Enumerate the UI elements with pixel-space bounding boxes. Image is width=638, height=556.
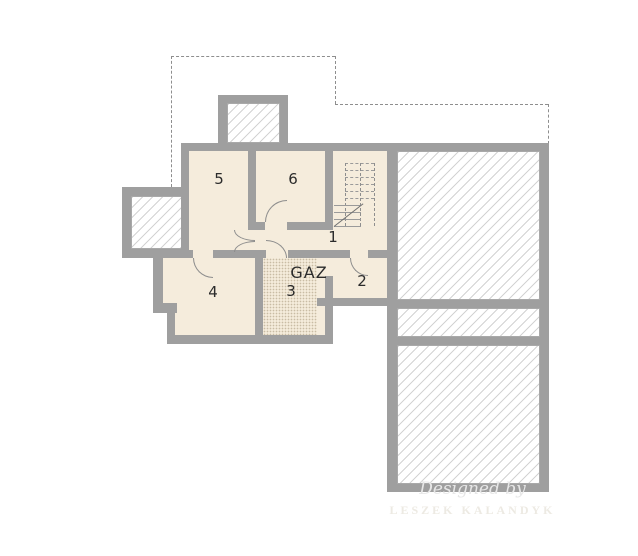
wall-mid-row-a [122,250,193,258]
watermark-author-name: LESZEK KALANDYK [385,503,560,518]
stair-tread-solid [334,205,361,206]
wall-top [181,143,548,151]
wall-room2-bottom [317,298,397,306]
wall-wing-divider-1 [387,300,549,308]
stair-edge-right [374,163,375,226]
stair-tread-solid [334,219,361,220]
right-wing-bottom-hatch-area [397,345,540,484]
wall-room6-stair-divider [325,143,333,230]
upper-floor-outline-right [548,104,549,144]
chimney-hatch-area [227,103,280,143]
upper-floor-outline-left [171,56,172,187]
left-annex-hatch-area [131,196,182,249]
wall-wing-left [387,143,397,492]
wall-wing-divider-2 [387,337,549,345]
stair-tread-solid [334,212,361,213]
wall-room5-room6-divider [248,151,256,222]
stair-tread-solid [334,226,361,227]
room-4-label: 4 [199,283,227,301]
wall-bottom-left-block [167,335,333,344]
door-gap-room2 [350,250,368,258]
room-6-label: 6 [279,170,307,188]
right-wing-top-hatch-area [397,151,540,300]
upper-floor-outline-step-v [335,56,336,104]
wall-right-outer [540,143,549,492]
door-gap-room6 [265,222,287,230]
upper-floor-outline-top [171,56,335,57]
door-gap-room4 [193,250,213,258]
floor-plan: 5 6 1 2 3 4 GAZ Designed by LESZEK KALAN… [0,0,638,556]
wall-room6-bottom-a [248,222,265,230]
wall-room4-room3-divider [255,250,263,335]
room-2-label: 2 [348,272,376,290]
watermark-designed-by: Designed by [395,479,550,499]
room-3-label: 3 [277,282,305,300]
stair-edge-center [360,163,361,226]
room-5-label: 5 [205,170,233,188]
room-1-label: 1 [319,228,347,246]
wall-left-upper [181,143,189,252]
right-wing-mid-hatch-area [397,308,540,337]
upper-floor-outline-mid [335,104,548,105]
gaz-room-label: GAZ [288,264,330,282]
wall-mid-row-c [288,250,350,258]
room-4-floor-lower [175,305,255,335]
